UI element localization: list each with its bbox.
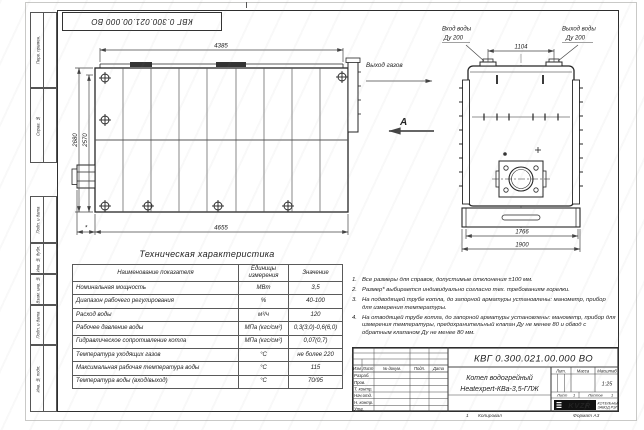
param-value: не более 220 bbox=[289, 348, 343, 361]
spec-table: Наименование показателя Единицы измерени… bbox=[72, 264, 343, 389]
burner-flange-plate bbox=[492, 161, 550, 197]
boiler-body-outline bbox=[95, 62, 348, 212]
boiler-front-view: Вход воды Ду 200 Выход воды Ду 200 1104 … bbox=[432, 18, 622, 264]
note-number: 4. bbox=[352, 315, 362, 338]
col-data: Дата bbox=[432, 366, 445, 371]
footer-zone-number: 1 bbox=[466, 414, 469, 419]
param-unit: % bbox=[239, 295, 289, 308]
note-number: 3. bbox=[352, 297, 362, 312]
table-header-row: Наименование показателя Единицы измерени… bbox=[73, 265, 343, 282]
margin-stamp-label: Подп. и дата bbox=[35, 312, 40, 339]
dim-flange-span: 1104 bbox=[515, 45, 529, 51]
water-outlet-dn: Ду 200 bbox=[565, 36, 586, 42]
param-name: Диапазон рабочего регулирования bbox=[73, 295, 239, 308]
note-number: 1. bbox=[352, 277, 362, 285]
sheets-value: 1 bbox=[611, 393, 613, 398]
water-inlet-dn: Ду 200 bbox=[443, 36, 464, 42]
table-row: Номинальная мощностьМВт3,5 bbox=[73, 282, 343, 295]
note-text: Размер* выбирается индивидуально согласн… bbox=[362, 287, 570, 295]
margin-stamp-label: Справ. № bbox=[35, 116, 40, 136]
corner-designation-text: КВГ 0.300.021.00.000 ВО bbox=[91, 17, 193, 26]
param-unit: °С bbox=[239, 362, 289, 375]
staff-tkontr: Т. контр. bbox=[354, 387, 373, 392]
param-name: Температура уходящих газов bbox=[73, 348, 239, 361]
drawing-sheet: { "sheet": { "corner_stamp": "КВГ 0.300.… bbox=[0, 0, 644, 430]
water-inlet-label: Вход воды bbox=[442, 27, 472, 33]
param-unit: м³/ч bbox=[239, 308, 289, 321]
col-podp: Подп. bbox=[414, 366, 425, 371]
margin-stamp-sprav-no: Справ. № bbox=[30, 88, 57, 163]
scale-value: 1:25 bbox=[602, 382, 614, 388]
spec-table-title: Техническая характеристика bbox=[72, 249, 342, 259]
dim-base-width: 1900 bbox=[515, 243, 529, 249]
base-skid bbox=[462, 208, 580, 227]
view-a-label: А bbox=[399, 117, 407, 128]
margin-stamp-inv-dubl: Инв. № дубл. bbox=[30, 243, 57, 274]
param-name: Гидравлическое сопротивление котла bbox=[73, 335, 239, 348]
fold-mark bbox=[246, 2, 247, 8]
staff-prov: Пров. bbox=[354, 380, 365, 385]
title-block: Изм Лист № докум. Подп. Дата Разраб. Про… bbox=[352, 347, 619, 412]
note-item: 4.На отводящей трубе котла, до запорной … bbox=[352, 315, 616, 338]
staff-nachotd: Нач.отд. bbox=[354, 393, 372, 398]
table-row: Температура воды (вход/выход)°С70/95 bbox=[73, 375, 343, 388]
param-value: 40-100 bbox=[289, 295, 343, 308]
param-unit: °С bbox=[239, 348, 289, 361]
note-item: 1.Все размеры для справок, допустимые от… bbox=[352, 277, 616, 285]
col-header-value: Значение bbox=[289, 265, 343, 282]
dim-body-width: 1766 bbox=[515, 230, 529, 236]
mass-label: Масса bbox=[577, 368, 590, 373]
note-number: 2. bbox=[352, 287, 362, 295]
col-header-name: Наименование показателя bbox=[73, 265, 239, 282]
logo-caption-line2: ЗАВОД РЭП bbox=[598, 406, 619, 410]
paper-sheet: КВГ 0.300.021.00.000 ВО Перв. примен. Сп… bbox=[0, 0, 644, 430]
gas-outlet-duct bbox=[346, 58, 361, 132]
kvzr-logo: KVZR КОТЕЛЬНЫЙ ЗАВОД РЭП bbox=[554, 400, 619, 410]
param-value: 120 bbox=[289, 308, 343, 321]
param-name: Температура воды (вход/выход) bbox=[73, 375, 239, 388]
param-name: Максимальная рабочая температура воды bbox=[73, 362, 239, 375]
dim-height-outer: 2680 bbox=[73, 133, 79, 148]
param-unit: МПа (кгс/см²) bbox=[239, 322, 289, 335]
col-izm: Изм bbox=[353, 366, 361, 371]
margin-stamp-label: Инв. № подл. bbox=[35, 365, 40, 392]
col-list: Лист bbox=[362, 366, 374, 371]
margin-stamp-inv-podl: Инв. № подл. bbox=[30, 345, 57, 412]
table-row: Расход водым³/ч120 bbox=[73, 308, 343, 321]
param-value: 3,5 bbox=[289, 282, 343, 295]
boiler-side-view: 4385 4655 * 2680 2570 Выход газов А bbox=[60, 36, 450, 240]
margin-stamp-label: Взам. инв. № bbox=[35, 276, 40, 303]
dim-burner-asterisk: * bbox=[85, 225, 88, 232]
footer-format-label: Формат А3 bbox=[573, 414, 599, 419]
kvzr-logo-text: KVZR bbox=[568, 401, 591, 410]
param-name: Расход воды bbox=[73, 308, 239, 321]
footer-copied-label: Копировал bbox=[478, 414, 502, 419]
sheet-value: 1 bbox=[573, 393, 575, 398]
margin-stamp-label: Инв. № дубл. bbox=[35, 245, 40, 272]
burner-mount bbox=[72, 165, 95, 188]
table-row: Рабочее давление водыМПа (кгс/см²)0,3(3,… bbox=[73, 322, 343, 335]
col-docum: № докум. bbox=[383, 366, 401, 371]
margin-stamp-podp-data-1: Подп. и дата bbox=[30, 196, 57, 243]
note-item: 2.Размер* выбирается индивидуально согла… bbox=[352, 287, 616, 295]
param-unit: МВт bbox=[239, 282, 289, 295]
sheet-label: Лист bbox=[556, 393, 568, 398]
margin-stamp-label: Перв. примен. bbox=[35, 36, 40, 65]
note-item: 3.На подводящей трубе котла, до запорной… bbox=[352, 297, 616, 312]
param-unit: МПа (кгс/см²) bbox=[239, 335, 289, 348]
note-text: На отводящей трубе котла, до запорной ар… bbox=[362, 315, 616, 338]
col-header-units: Единицы измерения bbox=[239, 265, 289, 282]
table-row: Температура уходящих газов°Сне более 220 bbox=[73, 348, 343, 361]
dim-bottom-length: 4655 bbox=[214, 225, 228, 232]
staff-utv: Утв. bbox=[354, 406, 364, 411]
document-number: КВГ 0.300.021.00.000 ВО bbox=[474, 354, 593, 365]
sheets-label: Листов bbox=[587, 393, 603, 398]
product-name-line2: Heatexpert-КВа-3,5-ГЛЖ bbox=[460, 386, 539, 393]
note-text: Все размеры для справок, допустимые откл… bbox=[362, 277, 533, 285]
param-unit: °С bbox=[239, 375, 289, 388]
param-name: Рабочее давление воды bbox=[73, 322, 239, 335]
margin-stamp-podp-data-2: Подп. и дата bbox=[30, 305, 57, 345]
margin-stamp-vzam-inv: Взам. инв. № bbox=[30, 274, 57, 305]
dim-height-inner: 2570 bbox=[83, 133, 89, 148]
param-value: 70/95 bbox=[289, 375, 343, 388]
param-value: 0,07(0,7) bbox=[289, 335, 343, 348]
notes-list: 1.Все размеры для справок, допустимые от… bbox=[352, 277, 616, 340]
table-row: Диапазон рабочего регулирования%40-100 bbox=[73, 295, 343, 308]
param-value: 115 bbox=[289, 362, 343, 375]
dim-top-length: 4385 bbox=[214, 43, 228, 50]
lit-label: Лит. bbox=[555, 368, 566, 373]
margin-stamp-label: Подп. и дата bbox=[35, 206, 40, 233]
note-text: На подводящей трубе котла, до запорной а… bbox=[362, 297, 616, 312]
scale-label: Масштаб bbox=[597, 368, 617, 373]
water-outlet-label: Выход воды bbox=[562, 27, 596, 33]
product-name-line1: Котел водогрейный bbox=[466, 374, 533, 382]
param-name: Номинальная мощность bbox=[73, 282, 239, 295]
corner-designation-stamp: КВГ 0.300.021.00.000 ВО bbox=[62, 12, 222, 31]
table-row: Максимальная рабочая температура воды°С1… bbox=[73, 362, 343, 375]
margin-stamp-perv-primen: Перв. примен. bbox=[30, 12, 57, 88]
staff-nkontr: Н. контр. bbox=[354, 400, 373, 405]
gas-outlet-label: Выход газов bbox=[366, 61, 403, 69]
staff-razrab: Разраб. bbox=[354, 373, 370, 378]
param-value: 0,3(3,0)-0,6(6,0) bbox=[289, 322, 343, 335]
table-row: Гидравлическое сопротивление котлаМПа (к… bbox=[73, 335, 343, 348]
